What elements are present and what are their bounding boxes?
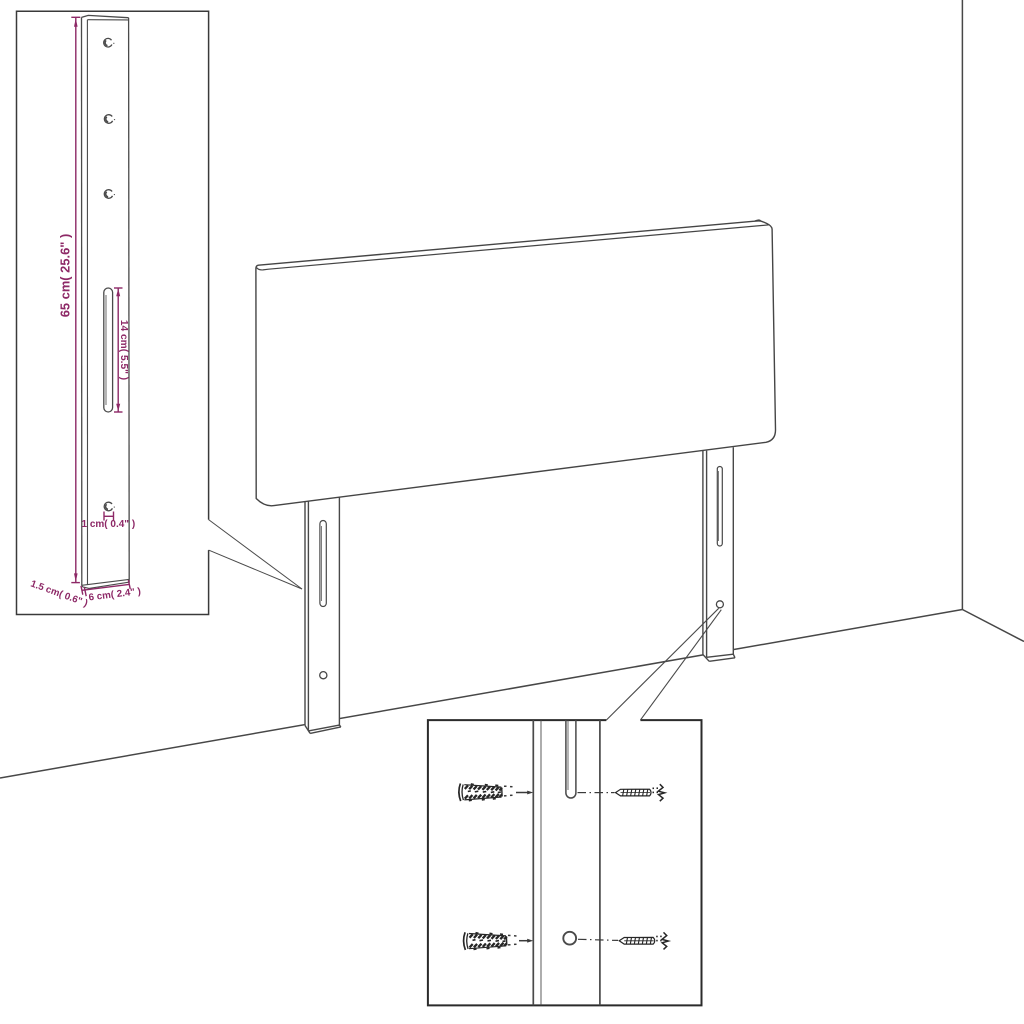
svg-text:14 cm( 5.5" ): 14 cm( 5.5" ) — [118, 320, 129, 380]
svg-text:65 cm( 25.6" ): 65 cm( 25.6" ) — [58, 234, 73, 318]
svg-text:1 cm( 0.4" ): 1 cm( 0.4" ) — [82, 519, 136, 530]
